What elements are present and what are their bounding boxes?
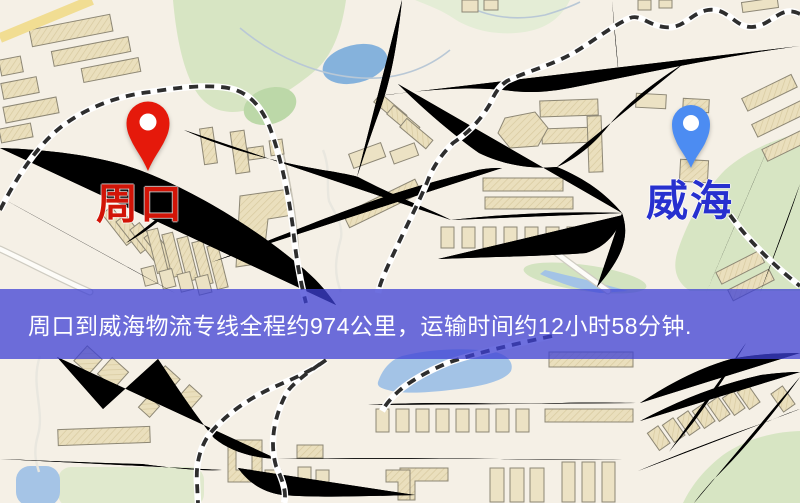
destination-pin[interactable] — [664, 104, 718, 174]
route-info-banner: 周口到威海物流专线全程约974公里，运输时间约12小时58分钟. — [0, 289, 800, 359]
origin-pin[interactable] — [118, 101, 178, 177]
route-info-text: 周口到威海物流专线全程约974公里，运输时间约12小时58分钟. — [28, 307, 692, 341]
destination-pin-hole — [683, 115, 699, 131]
origin-label: 周口 — [96, 171, 184, 232]
origin-pin-hole — [140, 114, 157, 131]
map-screenshot: 周口 威海 周口到威海物流专线全程约974公里，运输时间约12小时58分钟. — [0, 0, 800, 503]
origin-pin-shape — [127, 102, 170, 172]
destination-label: 威海 — [646, 168, 734, 229]
map-canvas[interactable] — [0, 0, 800, 503]
destination-pin-shape — [672, 105, 710, 168]
